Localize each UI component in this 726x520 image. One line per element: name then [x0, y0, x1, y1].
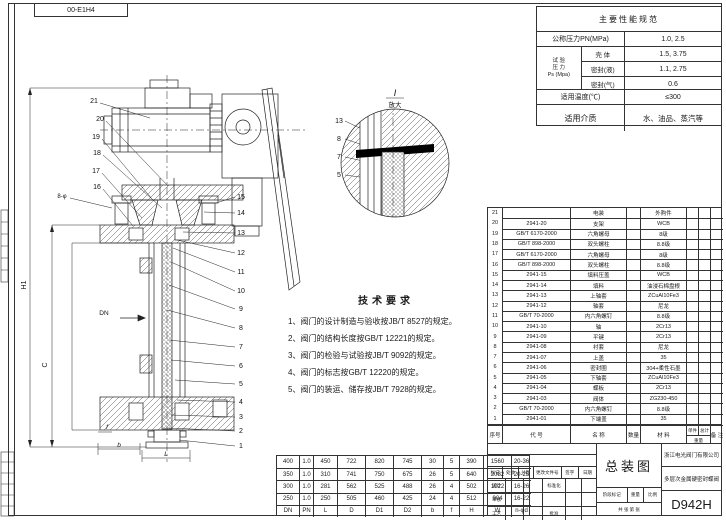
parts-row: 21电装外购件 [488, 208, 721, 218]
balloon-right: 9 [239, 306, 243, 313]
parts-table: 21电装外购件202941-20支架WCB19GB/T 6170-2000六角螺… [487, 207, 722, 425]
tech-requirements-title: 技术要求 [288, 292, 484, 307]
company-name: 浙江电光阀门有限公司 [662, 444, 721, 466]
parts-row: 142941-14填料油浸石棉盘根 [488, 280, 721, 290]
detail-title: I [394, 88, 397, 98]
spec-temp-value: ≤300 [624, 90, 721, 104]
balloon-right: 2 [239, 428, 243, 435]
dim-row: DNPNLDD1D2bfHWn-φd [277, 505, 529, 517]
dim-b: b [117, 442, 121, 449]
parts-row: 72941-07上盖35 [488, 352, 721, 362]
balloon-left: 17 [92, 168, 100, 175]
balloon-right: 8 [239, 325, 243, 332]
spec-pn-label: 公称压力PN(MPa) [537, 32, 624, 46]
spec-pn-value: 1.0, 2.5 [624, 32, 721, 46]
balloon-right: 14 [237, 210, 245, 217]
tech-requirement-item: 4、阀门的标志按GB/T 12220的规定。 [288, 364, 484, 381]
dim-dn: DN [99, 310, 109, 317]
tech-requirement-item: 2、阀门的结构长度按GB/T 12221的规定。 [288, 330, 484, 347]
col-name: 名 称 [570, 425, 626, 443]
balloon-left: 20 [96, 116, 104, 123]
parts-table-header: 序号 代 号 名 称 数量 材 料 单件 总计 重量 备 注 [487, 425, 722, 444]
spec-table-title: 主要性能规范 [537, 7, 721, 31]
col-seq: 序号 [488, 425, 502, 443]
parts-row: 202941-20支架WCB [488, 218, 721, 228]
parts-row: 102941-10轴2Cr13 [488, 321, 721, 331]
spec-medium-label: 适用介质 [537, 105, 624, 131]
product-name: 多层次金属硬密封蝶阀 [662, 466, 721, 490]
parts-row: 132941-13上轴套ZCuAl10Fe3 [488, 290, 721, 300]
parts-row: 19GB/T 6170-2000六角螺母8级 [488, 229, 721, 239]
balloon-right: 1 [239, 443, 243, 450]
balloon-right: 6 [239, 363, 243, 370]
title-block-middle: 总装图 阶段标记 重量 比例 共 张 第 张 [596, 444, 661, 515]
balloon-detail: 8 [337, 136, 341, 143]
parts-row: 62941-06密封圈304+柔性石墨 [488, 362, 721, 372]
parts-row: 42941-04蝶板2Cr13 [488, 383, 721, 393]
parts-row: 12941-01下端盖35 [488, 414, 721, 424]
balloon-left: 16 [93, 184, 101, 191]
spec-table: 主要性能规范 公称压力PN(MPa) 1.0, 2.5 试 验 压 力 Ps (… [536, 6, 722, 126]
tech-requirements-list: 1、阀门的设计制造与验收按JB/T 8527的规定。2、阀门的结构长度按GB/T… [288, 313, 484, 398]
dim-row: 3501.0310741750675265640208220-25 [277, 468, 529, 480]
model-number: D942H [662, 490, 721, 517]
dimension-table: 4001.0450722820745305390156020-363501.03… [276, 455, 530, 516]
parts-row: 152941-15填料压盖WCB [488, 270, 721, 280]
balloon-right: 11 [237, 269, 244, 276]
spec-test-values: 1.5, 3.75 1.1, 2.75 0.6 [624, 47, 721, 89]
col-note: 备 注 [710, 425, 723, 443]
tech-requirement-item: 3、阀门的检验与试验按JB/T 9092的规定。 [288, 347, 484, 364]
parts-row: 18GB/T 898-2000双头螺柱8.8级 [488, 239, 721, 249]
parts-row: 52941-05下轴套ZCuAl10Fe3 [488, 373, 721, 383]
holes-note: 8-φ [57, 194, 66, 200]
parts-row: 92941-09平键2Cr13 [488, 331, 721, 341]
balloon-left: 21 [90, 98, 98, 105]
view-title: 总装图 [597, 444, 661, 487]
balloon-right: 15 [237, 194, 245, 201]
drawing-sheet: 00-E1H4 [0, 0, 726, 520]
balloon-detail: 7 [337, 154, 341, 161]
balloon-detail: 5 [337, 172, 341, 179]
balloon-left: 19 [92, 134, 100, 141]
lower-flange [100, 397, 234, 430]
tech-requirement-item: 1、阀门的设计制造与验收按JB/T 8527的规定。 [288, 313, 484, 330]
balloon-detail: 13 [335, 118, 343, 125]
spec-temp-label: 适用温度(℃) [537, 90, 624, 104]
stage-row: 阶段标记 重量 比例 [597, 487, 661, 502]
detail-subtitle: 放大 [389, 100, 403, 109]
dim-row: 2501.025050546042524451290416-22 [277, 493, 529, 505]
parts-row: 2GB/T 70-2000内六角螺钉8.8级 [488, 403, 721, 413]
balloon-right: 3 [239, 414, 243, 421]
parts-row: 16GB/T 898-2000双头螺柱8.8级 [488, 259, 721, 269]
margin-zone-marks [1, 210, 14, 516]
col-weight-group: 单件 总计 重量 [686, 425, 710, 443]
parts-row: 32941-03阀体ZG230-450 [488, 393, 721, 403]
parts-row: 122941-12轴套尼龙 [488, 301, 721, 311]
sheet-count: 共 张 第 张 [597, 502, 661, 517]
parts-row: 82941-08衬套尼龙 [488, 342, 721, 352]
tech-requirements: 技术要求 1、阀门的设计制造与验收按JB/T 8527的规定。2、阀门的结构长度… [288, 292, 484, 398]
title-block-right: 浙江电光阀门有限公司 多层次金属硬密封蝶阀 D942H [661, 444, 721, 515]
col-material: 材 料 [640, 425, 686, 443]
balloon-left: 18 [93, 150, 101, 157]
balloon-right: 13 [237, 230, 245, 237]
parts-row: 17GB/T 6170-2000六角螺母8级 [488, 249, 721, 259]
detail-view [341, 98, 449, 224]
tech-requirement-item: 5、阀门的装运、储存按JB/T 7928的规定。 [288, 381, 484, 398]
support-bracket [122, 185, 243, 200]
handwheel [262, 88, 300, 290]
spec-test-group: 试 验 压 力 Ps (Mpa) [537, 47, 581, 89]
balloon-right: 7 [239, 344, 243, 351]
spec-medium-value: 水、油品、蒸汽等 [624, 105, 721, 131]
dim-h1: H1 [21, 280, 28, 289]
dim-l: L [164, 451, 168, 458]
dim-row: 4001.0450722820745305390156020-36 [277, 456, 529, 468]
col-qty: 数量 [626, 425, 640, 443]
main-drawing-svg: 212019181716151413121110987654321138758-… [0, 0, 486, 520]
balloon-right: 5 [239, 381, 243, 388]
balloon-right: 10 [237, 288, 245, 295]
upper-flange [100, 225, 234, 243]
spec-test-sublabels: 壳 体 密封(液) 密封(气) [581, 47, 625, 89]
parts-row: 11GB/T 70-2000内六角螺钉8.8级 [488, 311, 721, 321]
dim-row: 3001.0281562525488264502102216-26 [277, 480, 529, 492]
actuator-hub [225, 109, 261, 145]
balloon-right: 12 [237, 250, 245, 257]
dim-c: C [42, 362, 49, 367]
valve-assembly [28, 75, 374, 462]
balloon-right: 4 [239, 399, 243, 406]
col-code: 代 号 [502, 425, 570, 443]
